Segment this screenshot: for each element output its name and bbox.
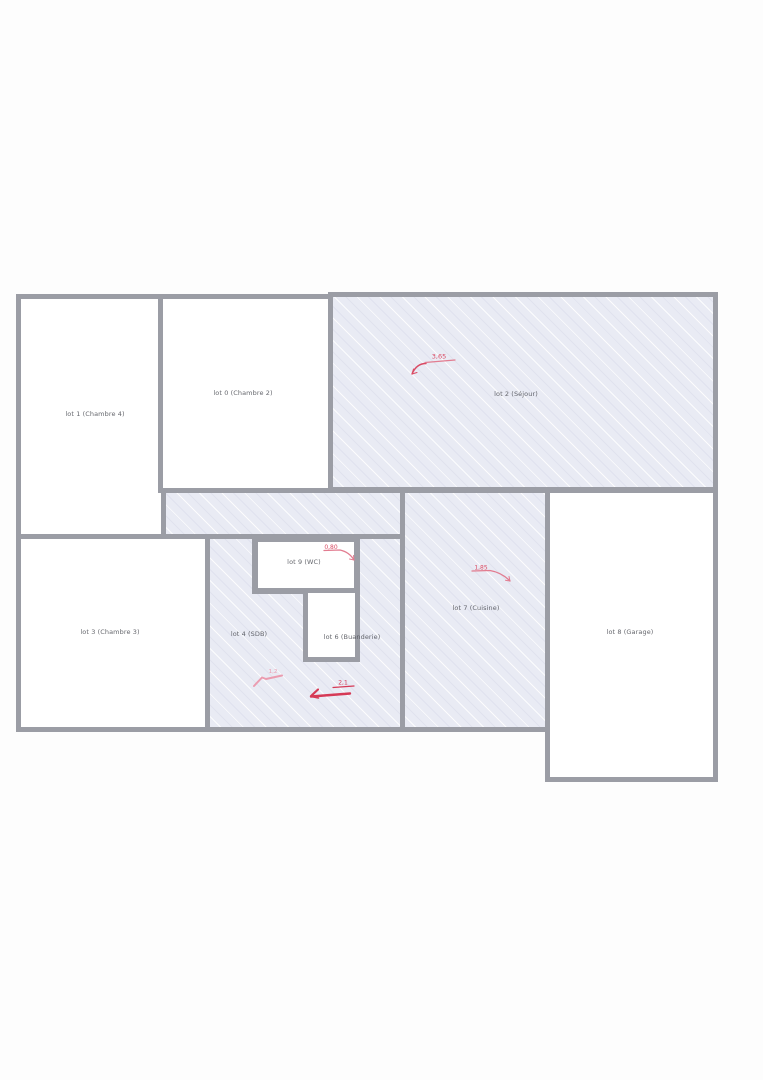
room-label-cuisine: lot 7 (Cuisine) <box>453 605 500 612</box>
dim-text-sdb: 1,2 <box>269 669 278 675</box>
room-label-garage: lot 8 (Garage) <box>607 629 654 636</box>
room-label-buanderie: lot 6 (Buanderie) <box>324 634 381 641</box>
room-label-chambre-4: lot 1 (Chambre 4) <box>65 411 124 418</box>
room-label-wc: lot 9 (WC) <box>287 559 321 566</box>
room-label-sdb: lot 4 (SDB) <box>231 631 267 638</box>
dim-text-sejour: 3,65 <box>432 353 446 361</box>
room-label-sejour: lot 2 (Séjour) <box>494 391 538 398</box>
dim-annotation-sdb-icon: 1,2 <box>248 664 288 690</box>
room-label-chambre-3: lot 3 (Chambre 3) <box>80 629 139 636</box>
room-label-chambre-2: lot 0 (Chambre 2) <box>213 390 272 397</box>
floor-plan-page: lot 1 (Chambre 4) lot 0 (Chambre 2) lot … <box>0 0 763 1080</box>
dim-text-buanderie: 2,1 <box>338 680 348 687</box>
dim-annotation-buanderie-icon: 2,1 <box>304 674 358 704</box>
dim-annotation-wc-icon: 0,80 <box>320 541 358 563</box>
room-buanderie <box>303 588 360 662</box>
dim-annotation-cuisine-icon: 1,85 <box>468 561 514 585</box>
room-degagement <box>158 488 405 540</box>
dim-annotation-sejour-icon: 3,65 <box>408 350 460 378</box>
